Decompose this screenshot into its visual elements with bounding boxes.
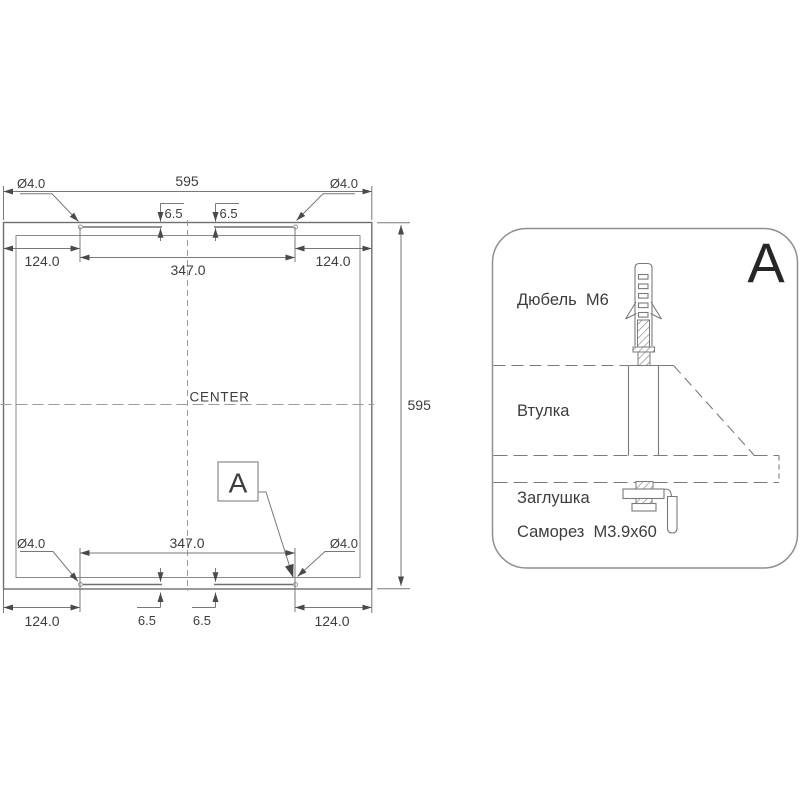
hole-dia-top-left-value: Ø4.0 xyxy=(17,176,45,191)
dim-offset-top-left: 124.0 xyxy=(4,249,81,270)
dim-slot-depth-bottom-right-value: 6.5 xyxy=(193,613,211,628)
dim-width-top-value: 595 xyxy=(175,173,199,189)
hole-dia-bottom-left-value: Ø4.0 xyxy=(17,536,45,551)
dim-height-right-value: 595 xyxy=(408,397,432,413)
dim-slot-depth-top-left-value: 6.5 xyxy=(165,206,183,221)
main-view: CENTER 595 595 Ø4.0 Ø4.0 124.0 xyxy=(1,173,432,629)
dim-offset-top-left-value: 124.0 xyxy=(24,253,59,269)
mounting-template-drawing: CENTER 595 595 Ø4.0 Ø4.0 124.0 xyxy=(0,0,800,800)
detail-callout: A xyxy=(218,462,293,578)
dim-offset-top-right-value: 124.0 xyxy=(315,253,350,269)
dim-width-top: 595 xyxy=(4,173,372,220)
dim-span-top-value: 347.0 xyxy=(170,262,205,278)
dim-offset-bottom-right: 124.0 xyxy=(295,608,372,630)
center-label: CENTER xyxy=(190,390,250,405)
hole-dia-bottom-right-value: Ø4.0 xyxy=(330,536,358,551)
dim-span-bottom-value: 347.0 xyxy=(169,535,204,551)
hole-dia-top-left: Ø4.0 xyxy=(17,176,79,222)
sleeve-label: Втулка xyxy=(517,402,570,420)
dim-height-right: 595 xyxy=(377,223,431,589)
hole-dia-bottom-left: Ø4.0 xyxy=(17,536,78,582)
dim-slot-depth-bottom-left-value: 6.5 xyxy=(138,613,156,628)
panel-inner-outline xyxy=(16,236,360,578)
plug-label: Заглушка xyxy=(517,489,590,507)
hole-dia-bottom-right: Ø4.0 xyxy=(298,536,359,577)
dim-offset-bottom-right-value: 124.0 xyxy=(314,613,349,629)
hole-dia-top-right: Ø4.0 xyxy=(297,176,359,221)
detail-view-title: A xyxy=(747,231,785,294)
dowel-label: Дюбель М6 xyxy=(517,291,609,309)
detail-view-panel: A Дюбель М6 Втулка xyxy=(493,229,798,569)
drawing-canvas: CENTER 595 595 Ø4.0 Ø4.0 124.0 xyxy=(0,0,800,800)
dim-offset-bottom-left-value: 124.0 xyxy=(24,613,59,629)
hole-dia-top-right-value: Ø4.0 xyxy=(330,176,358,191)
screw-label: Саморез М3.9х60 xyxy=(517,523,657,541)
dim-slot-depth-top-right-value: 6.5 xyxy=(220,206,238,221)
detail-callout-letter: A xyxy=(229,468,248,499)
